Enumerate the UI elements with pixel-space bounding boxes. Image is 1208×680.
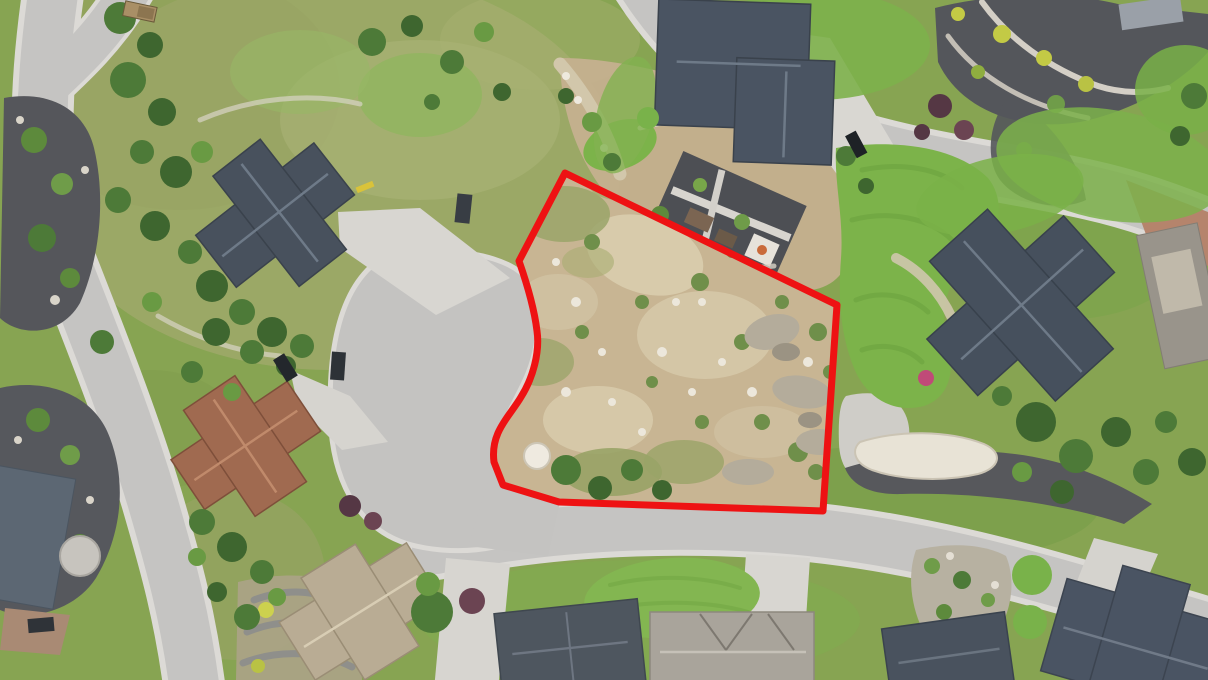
lot-bush-2: [635, 295, 649, 309]
lot-bush-10: [646, 376, 658, 388]
br-bush-2: [953, 571, 971, 589]
tree: [493, 83, 511, 101]
tree: [637, 107, 659, 129]
dirt-light-3: [543, 386, 653, 454]
stepping-stone-1: [562, 72, 570, 80]
tree: [652, 480, 672, 500]
tree: [1016, 402, 1056, 442]
tree: [250, 560, 274, 584]
tree-plum: [364, 512, 382, 530]
terrace-shrub-1: [258, 602, 274, 618]
tree: [234, 604, 260, 630]
shrub-yellow-2: [1036, 50, 1052, 66]
tree-pink-shrub: [918, 370, 934, 386]
tree-plum: [914, 124, 930, 140]
tree: [202, 318, 230, 346]
car-culdesac: [330, 352, 346, 381]
house-bottom-gray: [650, 612, 814, 680]
scrub-patch-8: [562, 246, 614, 278]
tree: [621, 459, 643, 481]
br-bush-4: [936, 604, 952, 620]
tree: [603, 153, 621, 171]
white-boulder: [524, 443, 550, 469]
mound-l2a: [26, 408, 50, 432]
car-driveway-topleft: [454, 193, 472, 223]
tree: [474, 22, 494, 42]
rock-cluster-east: [855, 433, 997, 479]
tree: [1133, 459, 1159, 485]
tree: [130, 140, 154, 164]
tree: [551, 455, 581, 485]
tree: [1181, 83, 1207, 109]
shrub-yellow-1: [993, 25, 1011, 43]
tree-bright: [1012, 555, 1052, 595]
tree-plum: [339, 495, 361, 517]
mound-l1c: [28, 224, 56, 252]
tree: [588, 476, 612, 500]
rock-l2b: [86, 496, 94, 504]
tree-plum: [928, 94, 952, 118]
tree: [189, 509, 215, 535]
lot-rock-8: [718, 358, 726, 366]
tree: [160, 156, 192, 188]
tree: [148, 98, 176, 126]
tree: [992, 386, 1012, 406]
house-bottom-dark: [494, 599, 646, 680]
tree: [217, 532, 247, 562]
outcrop-4: [722, 459, 774, 485]
tree: [1059, 439, 1093, 473]
tree-plum: [954, 120, 974, 140]
lot-bush-3: [691, 273, 709, 291]
tree: [1012, 462, 1032, 482]
tree: [223, 383, 241, 401]
br-bush-1: [924, 558, 940, 574]
br-bush-3: [981, 593, 995, 607]
lot-bush-9: [695, 415, 709, 429]
br-rock-1: [946, 552, 954, 560]
tree: [268, 588, 286, 606]
lot-bush-1: [584, 234, 600, 250]
tree: [1155, 411, 1177, 433]
tree: [178, 240, 202, 264]
tree: [257, 317, 287, 347]
mound-l2b: [60, 445, 80, 465]
lot-rock-10: [698, 298, 706, 306]
tree: [1050, 480, 1074, 504]
lot-rock-2: [571, 297, 581, 307]
tree: [440, 50, 464, 74]
aerial-photo: [0, 0, 1208, 680]
stepping-stone-2: [574, 96, 582, 104]
tree: [188, 548, 206, 566]
tree: [558, 88, 574, 104]
lot-bush-6: [809, 323, 827, 341]
tree: [110, 62, 146, 98]
tree: [1170, 126, 1190, 146]
rock-l1a: [16, 116, 24, 124]
lot-rock-3: [598, 348, 606, 356]
tree-bright: [1013, 605, 1047, 639]
tree: [411, 591, 453, 633]
lot-rock-14: [672, 298, 680, 306]
scrub-patch-5: [644, 440, 724, 484]
tree: [140, 211, 170, 241]
tree: [424, 94, 440, 110]
tree: [196, 270, 228, 302]
mound-l1a: [21, 127, 47, 153]
tree: [207, 582, 227, 602]
tree: [1101, 417, 1131, 447]
tree: [229, 299, 255, 325]
outcrop-5: [772, 343, 800, 361]
tree: [358, 28, 386, 56]
tree: [142, 292, 162, 312]
lot-rock-6: [657, 347, 667, 357]
aerial-photo-canvas: [0, 0, 1208, 680]
rock-l1b: [50, 295, 60, 305]
house-farleft-turret: [60, 536, 100, 576]
tree: [90, 330, 114, 354]
tree: [416, 572, 440, 596]
tree: [582, 112, 602, 132]
tree: [858, 178, 874, 194]
shrub-green-1: [971, 65, 985, 79]
br-rock-2: [991, 581, 999, 589]
lot-bush-13: [808, 464, 824, 480]
lot-bush-5: [775, 295, 789, 309]
terrace-shrub-4: [251, 659, 265, 673]
lot-rock-9: [747, 387, 757, 397]
lot-rock-11: [803, 357, 813, 367]
tree: [181, 361, 203, 383]
tree: [105, 187, 131, 213]
lot-bush-7: [754, 414, 770, 430]
tree: [191, 141, 213, 163]
outcrop-6: [798, 412, 822, 428]
shrub-yellow-3: [1078, 76, 1094, 92]
lot-rock-7: [688, 388, 696, 396]
lot-rock-13: [638, 428, 646, 436]
car-bottomleft: [27, 617, 54, 633]
mound-l1d: [60, 268, 80, 288]
lot-rock-5: [608, 398, 616, 406]
tree-plum: [459, 588, 485, 614]
orange-item: [757, 245, 767, 255]
mound-l1b: [51, 173, 73, 195]
tree: [401, 15, 423, 37]
lot-bush-11: [575, 325, 589, 339]
tree: [290, 334, 314, 358]
shrub-yellow-4: [951, 7, 965, 21]
rock-l1c: [81, 166, 89, 174]
tree: [240, 340, 264, 364]
rock-l2a: [14, 436, 22, 444]
tree: [137, 32, 163, 58]
patio-shrub-2: [734, 214, 750, 230]
lot-rock-4: [561, 387, 571, 397]
patio-shrub-3: [693, 178, 707, 192]
lot-rock-1: [552, 258, 560, 266]
tree: [1178, 448, 1206, 476]
